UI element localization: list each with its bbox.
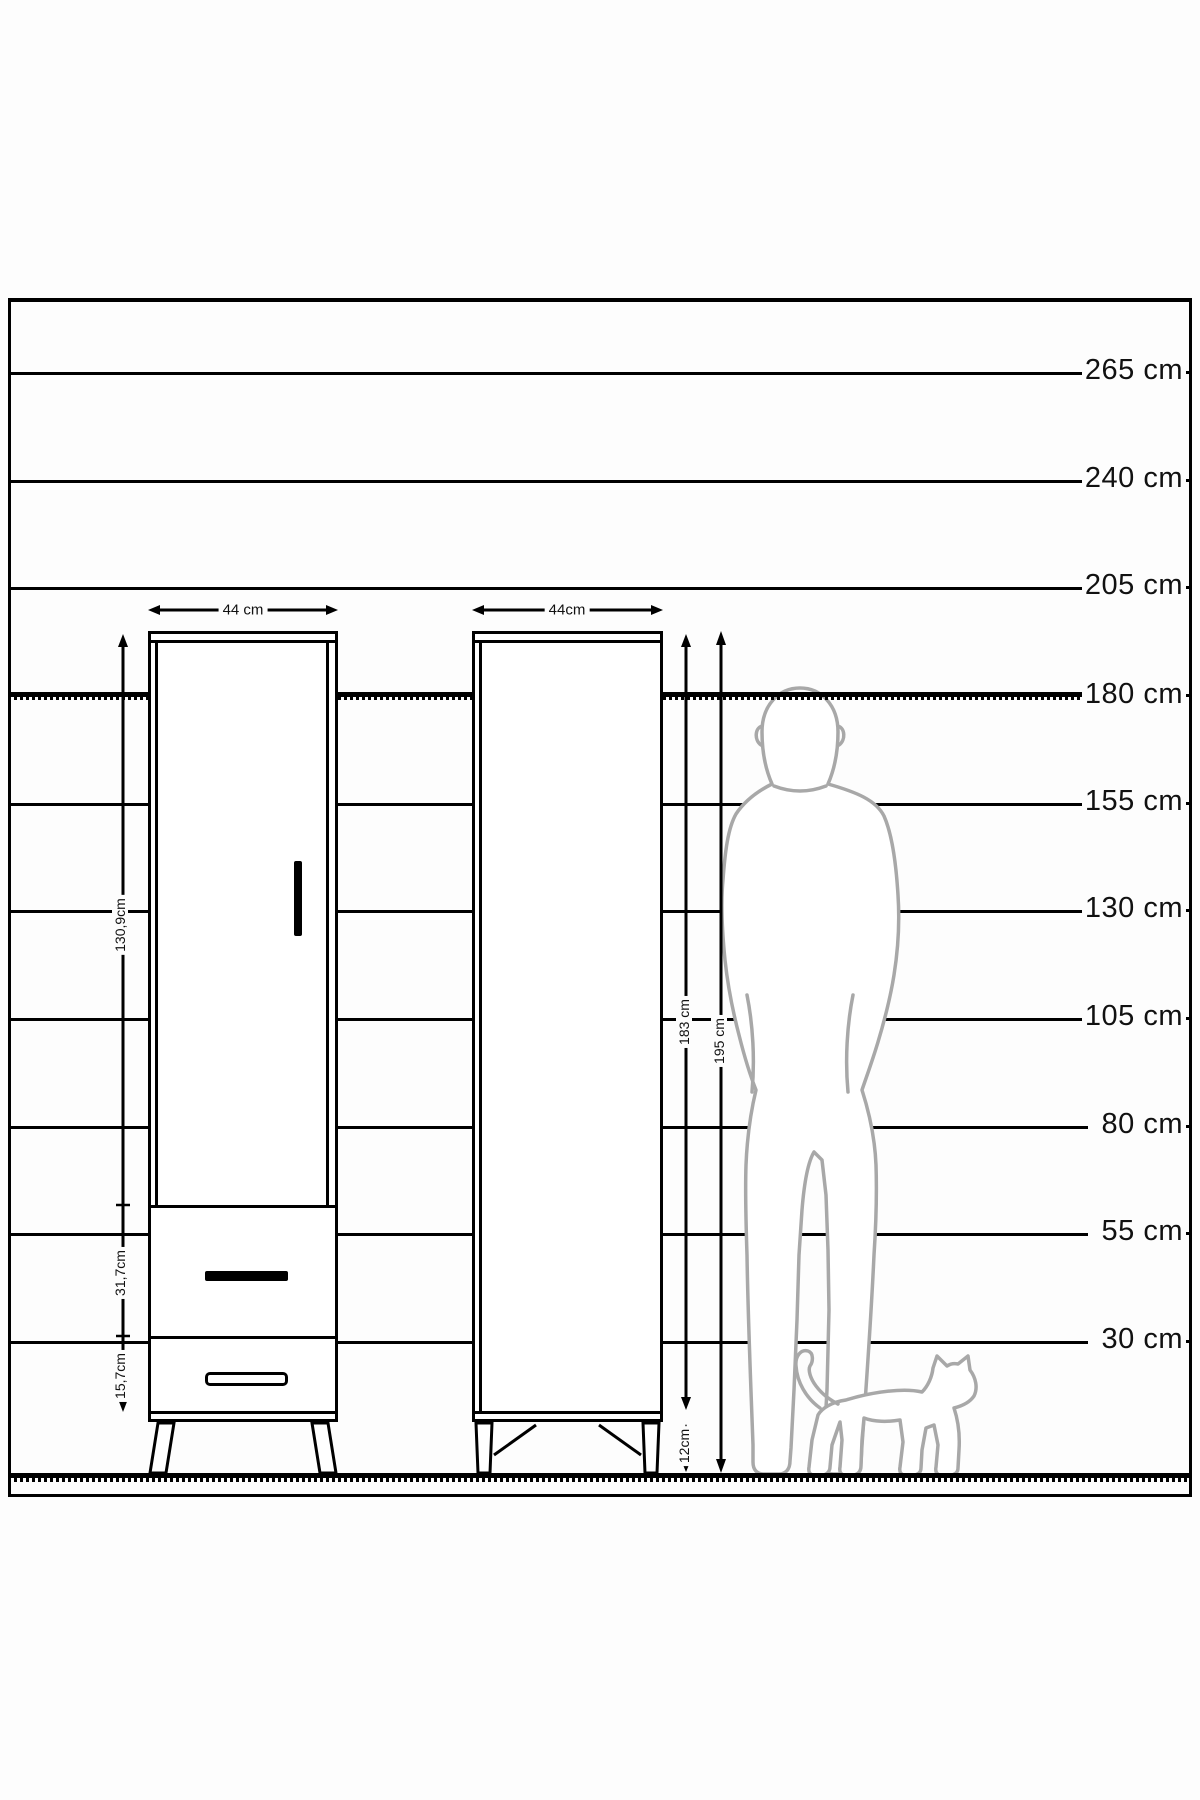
- ceiling-line-180-mid: [338, 692, 472, 700]
- door-handle: [294, 861, 302, 936]
- ceiling-line-180-left: [8, 692, 148, 700]
- side-leg-height-label: 12cm: [676, 1426, 692, 1466]
- door-right-gap-line: [326, 643, 329, 1205]
- cabinet-side-view: [472, 631, 663, 1422]
- scale-label-105: 105 cm: [1082, 1000, 1186, 1033]
- side-width-label: 44cm: [545, 602, 590, 619]
- scale-label-265: 265 cm: [1082, 354, 1186, 387]
- scale-label-30: 30 cm: [1099, 1323, 1186, 1356]
- door-left-gap-line: [155, 643, 158, 1205]
- front-width-label: 44 cm: [219, 602, 268, 619]
- side-total-height-label: 195 cm: [711, 1015, 727, 1067]
- cabinet-side-bottom-panel-line: [475, 1411, 660, 1414]
- scale-label-155: 155 cm: [1082, 785, 1186, 818]
- cabinet-front-bottom-panel-line: [151, 1411, 335, 1414]
- gridline-205: [8, 587, 1088, 590]
- side-door-edge-line: [479, 643, 482, 1411]
- ceiling-line-180-right: [663, 692, 1088, 700]
- gridline-240: [8, 480, 1088, 483]
- floor-line: [8, 1473, 1192, 1482]
- scale-label-205: 205 cm: [1082, 569, 1186, 602]
- gridline-265: [8, 372, 1088, 375]
- drawer1-handle: [205, 1271, 288, 1281]
- scale-label-55: 55 cm: [1099, 1215, 1186, 1248]
- drawer-divider-line: [151, 1336, 335, 1339]
- front-door-height-label: 130,9cm: [112, 895, 128, 955]
- diagram-stage: 265 cm 240 cm 205 cm 180 cm 155 cm 130 c…: [0, 0, 1200, 1800]
- scale-label-130: 130 cm: [1082, 892, 1186, 925]
- scale-label-80: 80 cm: [1099, 1108, 1186, 1141]
- side-body-height-label: 183 cm: [676, 996, 692, 1048]
- drawer-section-top-line: [151, 1205, 335, 1208]
- cabinet-side-top-panel-line: [475, 640, 660, 643]
- scale-label-180: 180 cm: [1082, 678, 1186, 711]
- front-drawer-height-label: 31,7cm: [112, 1247, 128, 1299]
- front-lower-drawer-height-label: 15,7cm: [112, 1350, 128, 1402]
- scale-label-240: 240 cm: [1082, 462, 1186, 495]
- cabinet-front-top-panel-line: [151, 640, 335, 643]
- drawer2-handle: [205, 1372, 288, 1386]
- cabinet-front-view: [148, 631, 338, 1422]
